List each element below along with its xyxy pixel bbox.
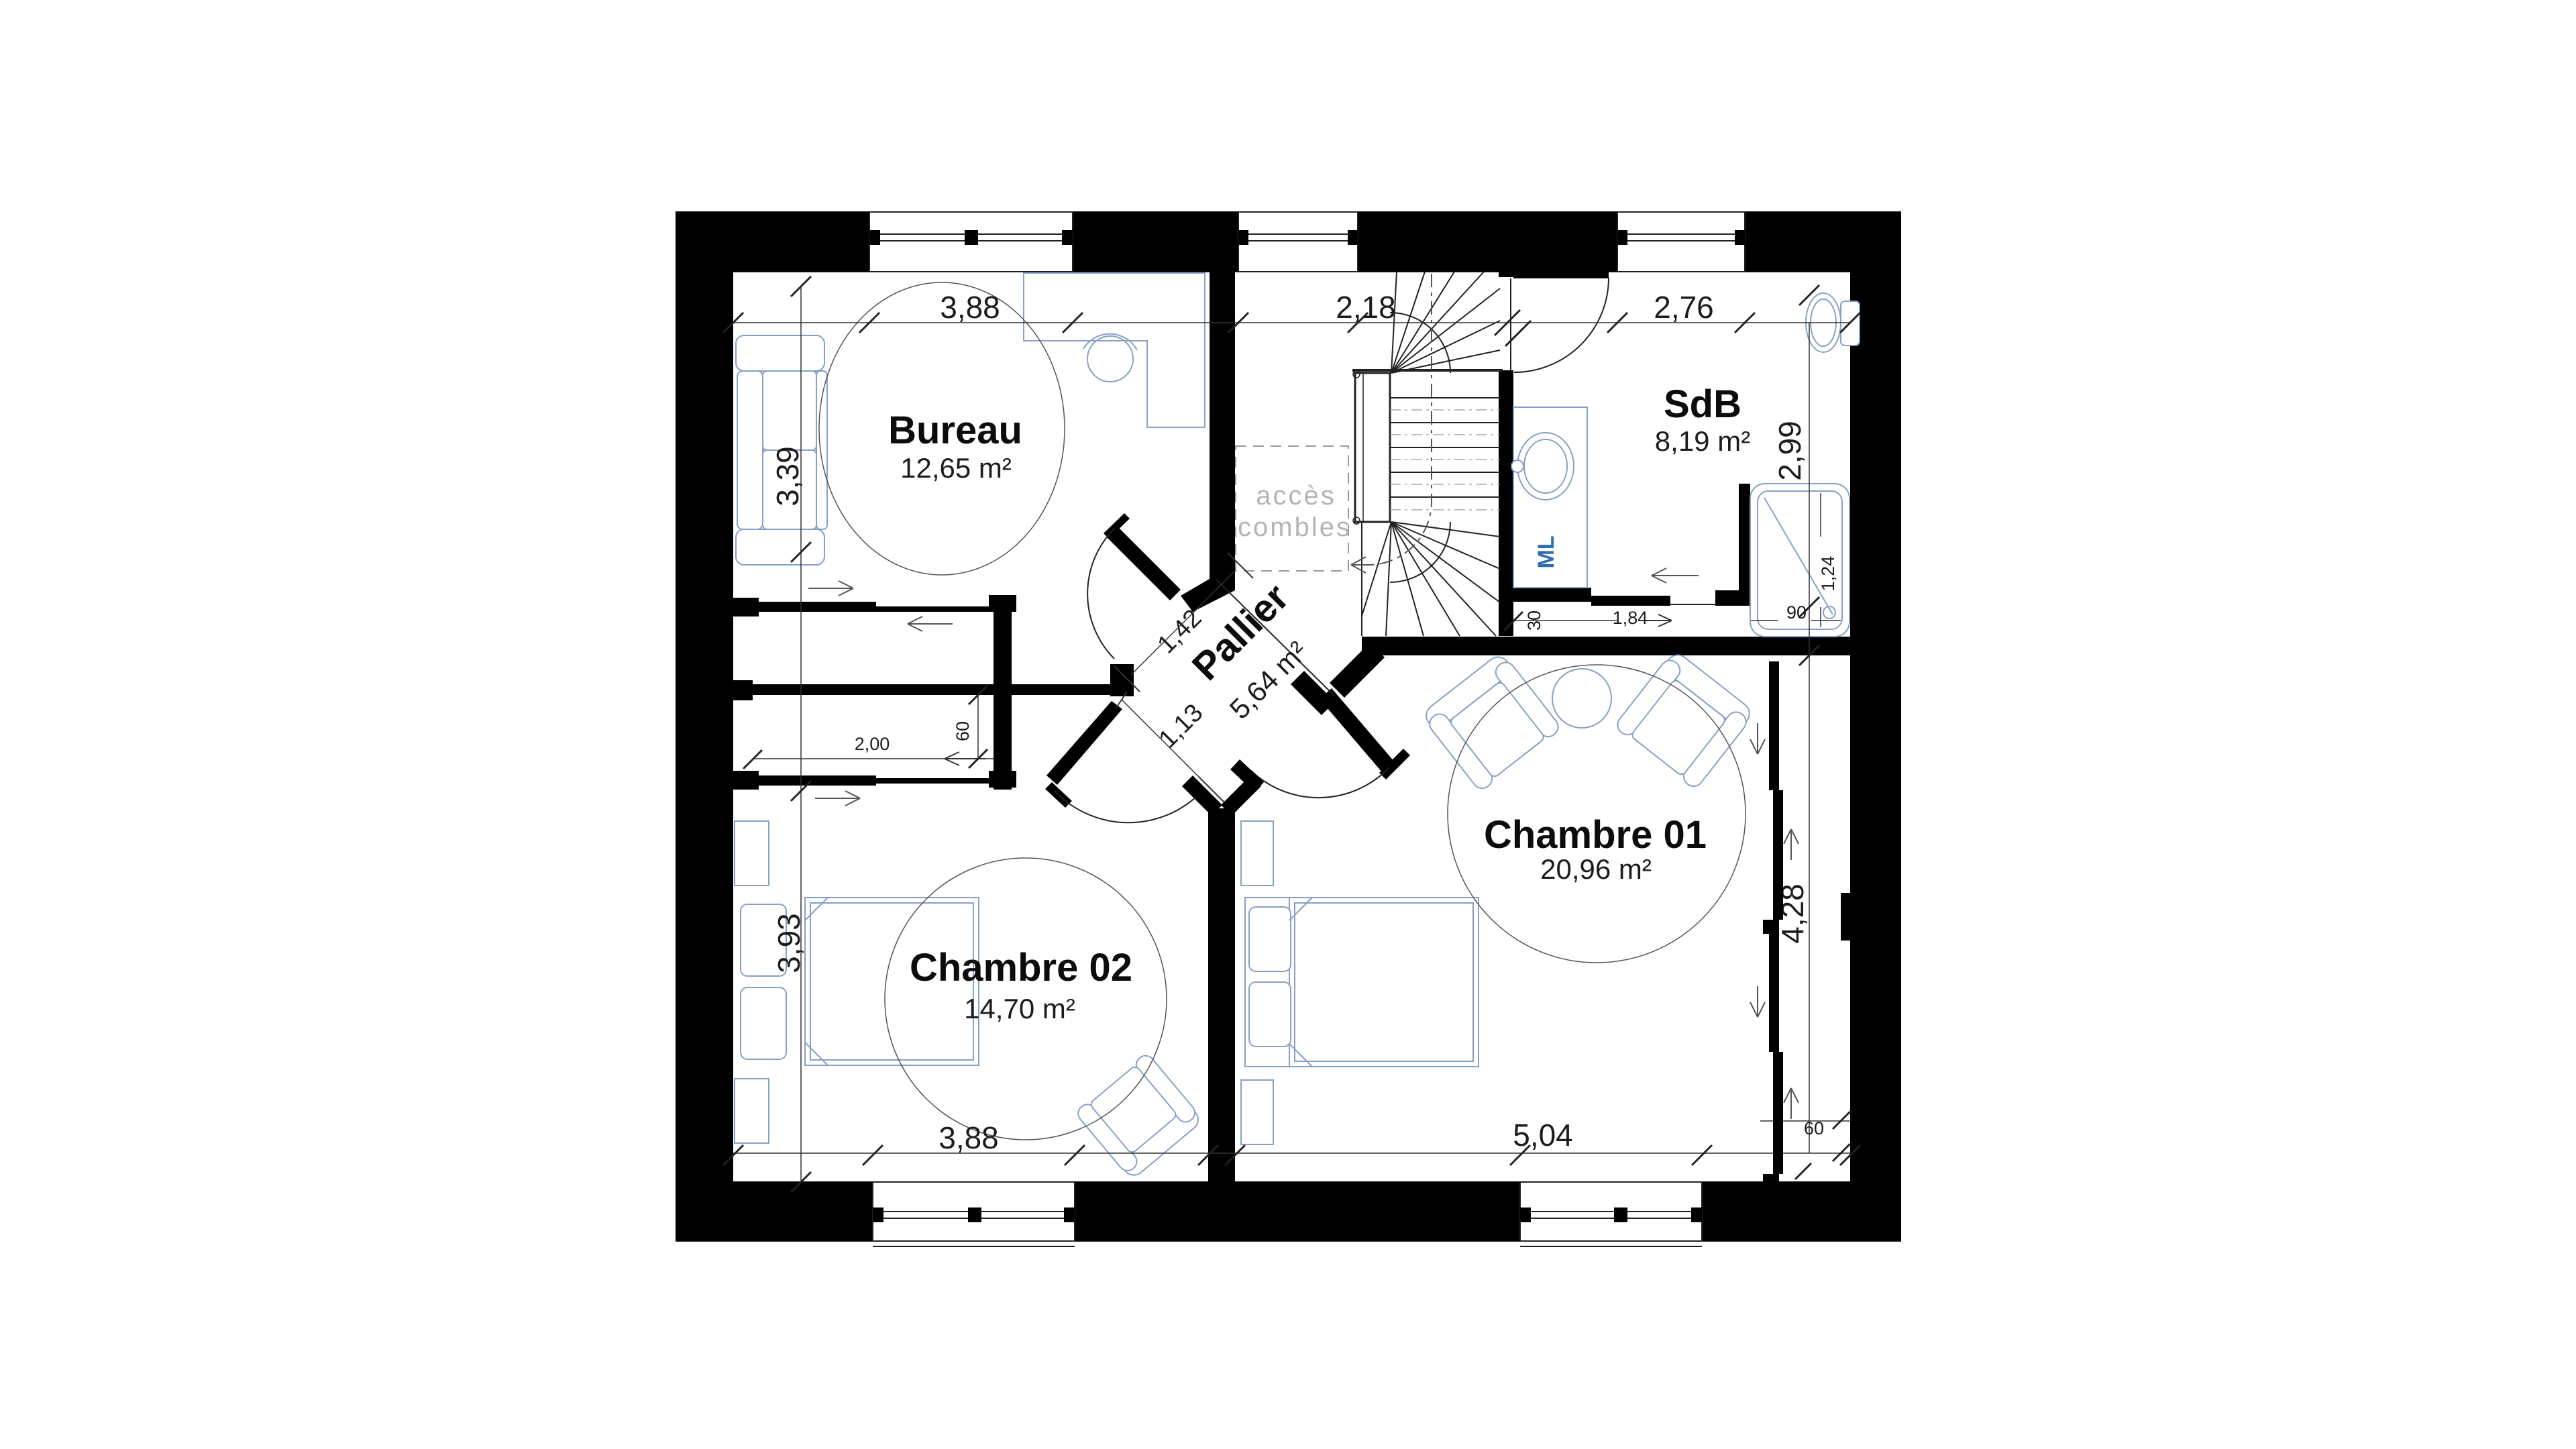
svg-text:3,88: 3,88 — [938, 1120, 999, 1155]
svg-text:90: 90 — [1786, 602, 1807, 623]
svg-text:2,76: 2,76 — [1654, 290, 1714, 325]
svg-text:2,00: 2,00 — [855, 734, 890, 754]
svg-text:2,18: 2,18 — [1336, 290, 1396, 325]
svg-text:Chambre 01: Chambre 01 — [1484, 813, 1707, 857]
svg-text:3,39: 3,39 — [770, 446, 805, 506]
svg-text:1,24: 1,24 — [1818, 556, 1838, 592]
svg-text:SdB: SdB — [1664, 382, 1741, 426]
svg-text:accès: accès — [1256, 481, 1336, 511]
svg-text:ML: ML — [1534, 535, 1559, 568]
svg-text:12,65 m²: 12,65 m² — [900, 452, 1012, 484]
svg-text:8,19 m²: 8,19 m² — [1655, 425, 1750, 457]
svg-text:5,04: 5,04 — [1513, 1118, 1573, 1152]
svg-text:2,99: 2,99 — [1772, 421, 1807, 481]
svg-text:1,84: 1,84 — [1613, 608, 1648, 628]
svg-text:combles: combles — [1238, 513, 1352, 542]
svg-text:Chambre 02: Chambre 02 — [910, 946, 1132, 989]
svg-text:14,70 m²: 14,70 m² — [964, 993, 1075, 1024]
svg-text:3,93: 3,93 — [771, 913, 806, 973]
svg-text:3,88: 3,88 — [940, 290, 1000, 325]
svg-text:Bureau: Bureau — [888, 409, 1022, 452]
svg-text:60: 60 — [953, 721, 973, 741]
svg-text:20,96 m²: 20,96 m² — [1540, 853, 1652, 885]
